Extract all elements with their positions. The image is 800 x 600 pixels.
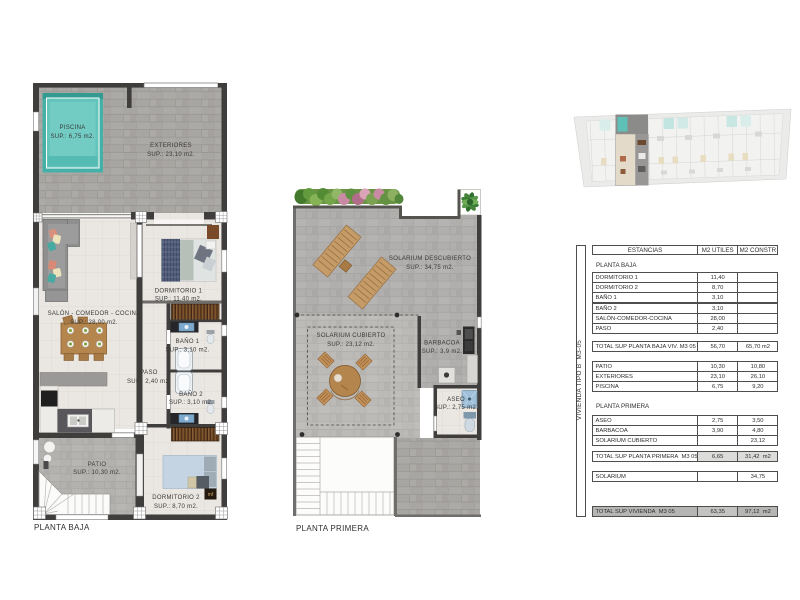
svg-text:PLANTA PRIMERA: PLANTA PRIMERA — [296, 524, 369, 533]
svg-text:SUP.: 10,30 m2.: SUP.: 10,30 m2. — [73, 470, 121, 476]
svg-text:DORMITORIO 1: DORMITORIO 1 — [155, 289, 203, 295]
svg-text:PASO: PASO — [140, 370, 157, 376]
svg-text:EXTERIORES: EXTERIORES — [150, 143, 192, 149]
svg-text:SUP.: 3,10 m2.: SUP.: 3,10 m2. — [165, 348, 209, 354]
svg-text:SUP.: 2,40 m2.: SUP.: 2,40 m2. — [127, 379, 171, 385]
svg-text:SUP.: 23,12 m2.: SUP.: 23,12 m2. — [327, 342, 375, 348]
svg-text:BAÑO 1: BAÑO 1 — [176, 338, 200, 345]
svg-text:SOLARIUM CUBIERTO: SOLARIUM CUBIERTO — [317, 333, 386, 339]
svg-text:SUP.: 3,10 m2.: SUP.: 3,10 m2. — [169, 400, 213, 406]
svg-text:SUP.: 11,40 m2.: SUP.: 11,40 m2. — [155, 297, 202, 303]
svg-text:PLANTA BAJA: PLANTA BAJA — [34, 523, 90, 532]
svg-text:SOLARIUM DESCUBIERTO: SOLARIUM DESCUBIERTO — [389, 256, 471, 262]
svg-text:SUP.: 28,00 m2.: SUP.: 28,00 m2. — [70, 320, 118, 326]
svg-text:SUP.: 6,75 m2.: SUP.: 6,75 m2. — [50, 134, 94, 140]
svg-text:SUP.: 8,70 m2.: SUP.: 8,70 m2. — [154, 504, 198, 510]
svg-text:ASEO: ASEO — [447, 397, 465, 403]
svg-text:DORMITORIO 2: DORMITORIO 2 — [152, 495, 200, 501]
svg-text:SUP.: 2,75 m2.: SUP.: 2,75 m2. — [434, 405, 478, 411]
svg-text:BARBACOA: BARBACOA — [424, 341, 460, 347]
svg-text:SUP.: 3,9 m2.: SUP.: 3,9 m2. — [422, 349, 463, 355]
svg-text:SUP.: 23,10 m2.: SUP.: 23,10 m2. — [147, 152, 195, 158]
svg-text:PISCINA: PISCINA — [59, 125, 85, 131]
svg-text:SUP.: 34,75 m2.: SUP.: 34,75 m2. — [406, 265, 454, 271]
svg-text:BAÑO 2: BAÑO 2 — [179, 391, 203, 398]
svg-text:PATIO: PATIO — [88, 462, 107, 468]
svg-text:mf: mf — [208, 492, 214, 498]
svg-text:SALÓN - COMEDOR - COCINA: SALÓN - COMEDOR - COCINA — [48, 310, 141, 317]
